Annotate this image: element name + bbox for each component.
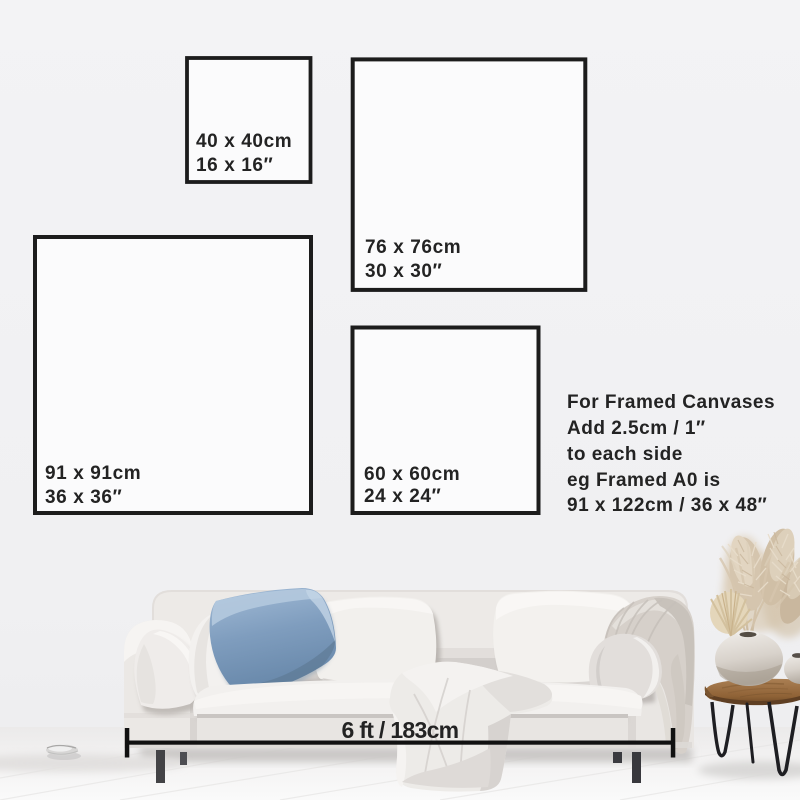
svg-text:76 x 76cm: 76 x 76cm <box>365 237 461 258</box>
svg-text:40 x 40cm: 40 x 40cm <box>196 131 292 152</box>
svg-text:36 x 36″: 36 x 36″ <box>45 487 122 508</box>
svg-text:30 x 30″: 30 x 30″ <box>365 261 442 282</box>
svg-text:91 x 122cm / 36 x 48″: 91 x 122cm / 36 x 48″ <box>567 495 767 516</box>
svg-text:eg Framed A0 is: eg Framed A0 is <box>567 470 721 491</box>
svg-text:24 x 24″: 24 x 24″ <box>364 486 441 507</box>
svg-text:Add 2.5cm / 1″: Add 2.5cm / 1″ <box>567 418 706 439</box>
svg-text:60 x 60cm: 60 x 60cm <box>364 464 460 485</box>
svg-text:91 x 91cm: 91 x 91cm <box>45 463 141 484</box>
svg-text:For Framed Canvases: For Framed Canvases <box>567 392 775 413</box>
svg-text:16 x 16″: 16 x 16″ <box>196 155 273 176</box>
svg-text:6 ft / 183cm: 6 ft / 183cm <box>342 717 459 743</box>
svg-text:to each side: to each side <box>567 444 683 465</box>
